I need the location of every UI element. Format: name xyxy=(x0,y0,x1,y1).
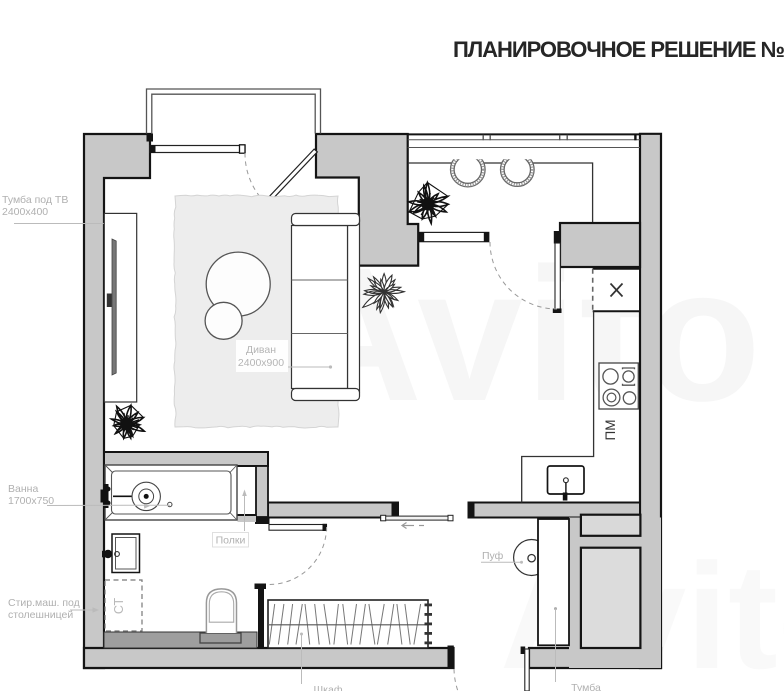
svg-text:ПЛАНИРОВОЧНОЕ РЕШЕНИЕ №: ПЛАНИРОВОЧНОЕ РЕШЕНИЕ № xyxy=(453,37,784,62)
svg-text:СТ: СТ xyxy=(112,598,126,615)
svg-text:ПМ: ПМ xyxy=(603,420,618,441)
svg-text:столешницей: столешницей xyxy=(8,609,73,621)
svg-text:Стир.маш. под: Стир.маш. под xyxy=(8,597,80,609)
svg-text:Пуф: Пуф xyxy=(482,550,504,562)
svg-text:Тумба: Тумба xyxy=(571,682,601,691)
svg-text:Тумба под ТВ: Тумба под ТВ xyxy=(2,194,68,206)
svg-text:Ванна: Ванна xyxy=(8,483,38,495)
svg-text:Полки: Полки xyxy=(216,535,246,547)
svg-text:2400х900: 2400х900 xyxy=(238,357,284,369)
svg-text:2400х400: 2400х400 xyxy=(2,206,48,218)
svg-text:Диван: Диван xyxy=(246,344,276,356)
svg-text:Шкаф: Шкаф xyxy=(314,684,343,691)
